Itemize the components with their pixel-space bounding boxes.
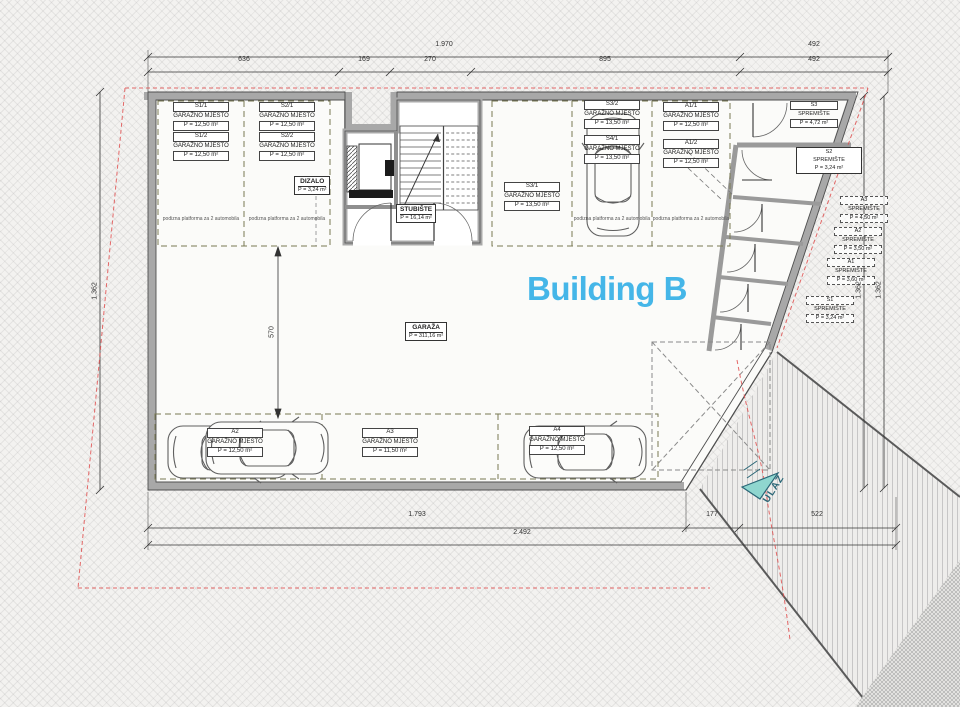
elevator-counterweight	[385, 160, 394, 176]
storage-area: P = 3,50 m²	[834, 245, 882, 254]
parking-label-s4-1: S4/1 GARAŽNO MJESTO P = 13,50 m²	[576, 135, 648, 164]
storage-name: SPREMIŠTE	[813, 157, 845, 164]
spot-id: S3/2	[584, 100, 640, 110]
dim-bottom-total: 2.492	[492, 529, 552, 536]
dim-bottom-seg-2: 177	[682, 511, 742, 518]
spot-type: GARAŽNO MJESTO	[584, 111, 640, 119]
spot-id: S2/1	[259, 102, 315, 112]
spot-area: P = 13,50 m²	[584, 119, 640, 129]
storage-id: S1	[806, 296, 854, 305]
parking-label-s1-2: S1/2 GARAŽNO MJESTO P = 12,50 m²	[165, 132, 237, 161]
spot-id: A1/1	[663, 102, 719, 112]
parking-label-a1-2: A1/2 GARAŽNO MJESTO P = 12,50 m²	[655, 139, 727, 168]
spot-area: P = 12,50 m²	[173, 151, 229, 161]
spot-area: P = 12,50 m²	[529, 445, 585, 455]
spot-type: GARAŽNO MJESTO	[207, 439, 263, 447]
spot-type: GARAŽNO MJESTO	[173, 113, 229, 121]
stairwell	[345, 100, 480, 246]
dim-top-right: 492	[784, 41, 844, 48]
storage-id: S3	[790, 101, 838, 110]
spot-type: GARAŽNO MJESTO	[259, 143, 315, 151]
spot-type: GARAŽNO MJESTO	[529, 437, 585, 445]
platform-note: podizna platforma za 2 automobila	[247, 216, 327, 222]
elevator-door	[349, 190, 393, 198]
storage-name: SPREMIŠTE	[798, 111, 830, 118]
spot-type: GARAŽNO MJESTO	[259, 113, 315, 121]
parking-label-s2-2: S2/2 GARAŽNO MJESTO P = 12,50 m²	[251, 132, 323, 161]
storage-label-a2: A2 SPREMIŠTE P = 3,50 m²	[828, 227, 888, 254]
garage-room-label: GARAŽA P = 311,16 m²	[405, 322, 447, 341]
storage-name: SPREMIŠTE	[848, 206, 880, 213]
spot-id: A4	[529, 426, 585, 436]
parking-label-a1-1: A1/1 GARAŽNO MJESTO P = 12,50 m²	[655, 102, 727, 131]
storage-area: P = 4,50 m²	[840, 214, 888, 223]
spot-id: S4/1	[584, 135, 640, 145]
storage-area: P = 4,72 m²	[790, 119, 838, 128]
storage-label-a3: A3 SPREMIŠTE P = 4,50 m²	[834, 196, 894, 223]
dim-top-seg-2: 169	[334, 56, 394, 63]
storage-label-s1: S1 SPREMIŠTE P = 3,24 m²	[800, 296, 860, 323]
platform-note: podizna platforma za 2 automobila	[572, 216, 652, 222]
spot-area: P = 13,50 m²	[504, 201, 560, 211]
spot-area: P = 12,50 m²	[663, 158, 719, 168]
spot-area: P = 12,50 m²	[259, 121, 315, 131]
storage-area: P = 3,60 m²	[827, 276, 875, 285]
spot-area: P = 13,50 m²	[584, 154, 640, 164]
storage-name: SPREMIŠTE	[842, 237, 874, 244]
storage-area: P = 3,24 m²	[806, 314, 854, 323]
spot-type: GARAŽNO MJESTO	[663, 150, 719, 158]
storage-label-s2: S2 SPREMIŠTE P = 3,24 m²	[796, 147, 862, 174]
storage-area: P = 3,24 m²	[815, 165, 843, 172]
storage-id: A2	[834, 227, 882, 236]
parking-label-a4: A4 GARAŽNO MJESTO P = 12,50 m²	[521, 426, 593, 455]
dim-top-seg-3: 270	[400, 56, 460, 63]
spot-id: S1/1	[173, 102, 229, 112]
stairs-room-label: STUBIŠTE P = 16,14 m²	[396, 204, 436, 223]
spot-area: P = 12,50 m²	[663, 121, 719, 131]
dim-top-seg-5: 492	[784, 56, 844, 63]
building-title: Building B	[527, 270, 687, 308]
elevator-name: DIZALO	[298, 178, 326, 187]
spot-type: GARAŽNO MJESTO	[584, 146, 640, 154]
spot-type: GARAŽNO MJESTO	[663, 113, 719, 121]
parking-label-a2: A2 GARAŽNO MJESTO P = 12,50 m²	[199, 428, 271, 457]
storage-name: SPREMIŠTE	[835, 268, 867, 275]
dim-top-seg-4: 895	[575, 56, 635, 63]
spot-type: GARAŽNO MJESTO	[504, 193, 560, 201]
parking-label-s3-1: S3/1 GARAŽNO MJESTO P = 13,50 m²	[496, 182, 568, 211]
storage-id: A1	[827, 258, 875, 267]
parking-label-s2-1: S2/1 GARAŽNO MJESTO P = 12,50 m²	[251, 102, 323, 131]
storage-id: S2	[826, 149, 833, 156]
storage-name: SPREMIŠTE	[814, 306, 846, 313]
parking-label-s1-1: S1/1 GARAŽNO MJESTO P = 12,50 m²	[165, 102, 237, 131]
parking-label-s3-2: S3/2 GARAŽNO MJESTO P = 13,50 m²	[576, 100, 648, 129]
dim-right-vertical-1: 1.362	[856, 281, 863, 299]
garage-name: GARAŽA	[409, 324, 443, 333]
dim-bottom-seg-3: 522	[787, 511, 847, 518]
storage-label-a1: A1 SPREMIŠTE P = 3,60 m²	[821, 258, 881, 285]
spot-area: P = 12,50 m²	[207, 447, 263, 457]
spot-id: S1/2	[173, 132, 229, 142]
spot-area: P = 12,50 m²	[173, 121, 229, 131]
stairs-name: STUBIŠTE	[400, 206, 432, 215]
garage-area: P = 311,16 m²	[409, 333, 443, 340]
dim-top-seg-1: 636	[214, 56, 274, 63]
dim-right-vertical-2: 1.362	[876, 281, 883, 299]
elevator-rail	[347, 146, 357, 192]
storage-label-s3: S3 SPREMIŠTE P = 4,72 m²	[784, 101, 844, 128]
spot-id: S2/2	[259, 132, 315, 142]
spot-id: A3	[362, 428, 418, 438]
platform-note: podizna platforma za 2 automobila	[651, 216, 731, 222]
elevator-room-label: DIZALO P = 3,24 m²	[294, 176, 330, 195]
storage-id: A3	[840, 196, 888, 205]
spot-id: A1/2	[663, 139, 719, 149]
dim-inner-vertical: 570	[269, 326, 276, 338]
spot-type: GARAŽNO MJESTO	[362, 439, 418, 447]
spot-type: GARAŽNO MJESTO	[173, 143, 229, 151]
dim-left-vertical: 1.362	[92, 282, 99, 300]
floor-plan-canvas: Building B ULAZ GARAŽA P = 311,16 m² STU…	[0, 0, 960, 707]
dim-top-total: 1.970	[414, 41, 474, 48]
parking-label-a3: A3 GARAŽNO MJESTO P = 11,50 m²	[354, 428, 426, 457]
dim-bottom-seg-1: 1.793	[387, 511, 447, 518]
spot-id: S3/1	[504, 182, 560, 192]
spot-area: P = 12,50 m²	[259, 151, 315, 161]
stairs-area: P = 16,14 m²	[400, 215, 432, 222]
spot-area: P = 11,50 m²	[362, 447, 418, 457]
platform-note: podizna platforma za 2 automobila	[161, 216, 241, 222]
elevator-area: P = 3,24 m²	[298, 187, 326, 194]
spot-id: A2	[207, 428, 263, 438]
